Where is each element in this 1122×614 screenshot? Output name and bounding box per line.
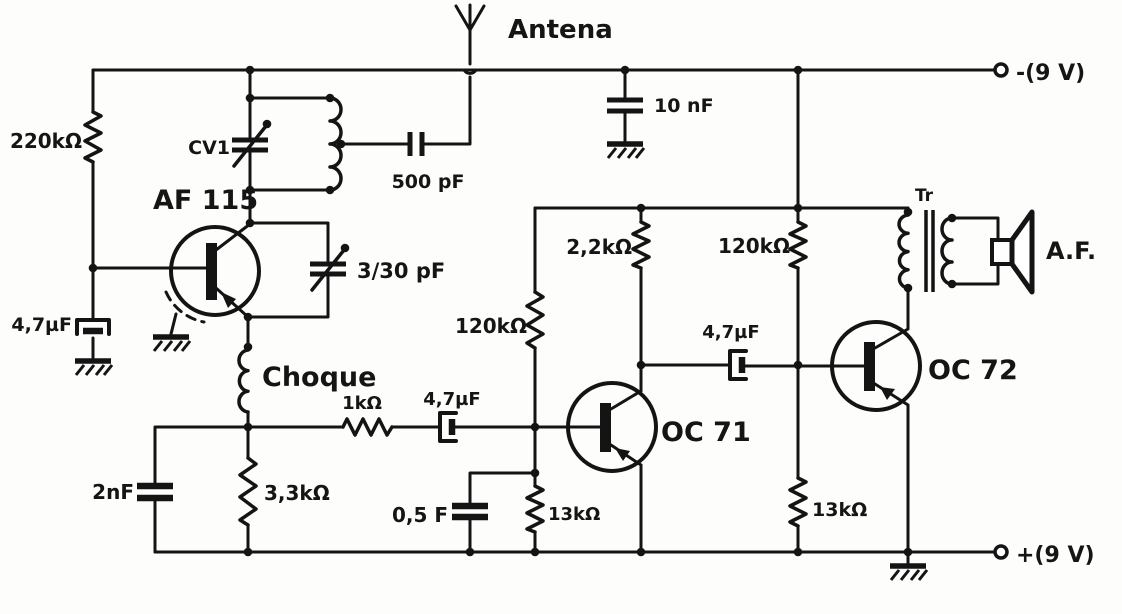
tank-link-wires xyxy=(250,98,330,190)
label-cv1: CV1 xyxy=(188,137,230,159)
capacitor-2nf: 2nF xyxy=(92,427,248,552)
label-2nf: 2nF xyxy=(92,480,134,504)
resistor-220k xyxy=(85,112,101,162)
capacitor-10nf: 10 nF xyxy=(607,70,714,158)
af115-shield-arc xyxy=(166,292,204,322)
oc71-base-bar xyxy=(600,403,611,452)
oc72-emitter-arrow xyxy=(880,387,895,400)
label-speaker: A.F. xyxy=(1046,237,1096,265)
antenna-wire xyxy=(424,30,476,144)
negative-terminal xyxy=(995,64,1007,76)
ground-icon xyxy=(153,337,190,351)
speaker-cone-icon xyxy=(1012,212,1032,292)
oc71-emitter-wire xyxy=(611,445,641,552)
label-220k: 220kΩ xyxy=(10,129,82,153)
speaker-driver xyxy=(992,240,1012,264)
label-13k-left: 13kΩ xyxy=(548,504,600,525)
antenna-icon xyxy=(456,5,484,30)
bias-network-oc72: 120kΩ 13kΩ xyxy=(718,70,867,552)
capacitor-500pf: 500 pF xyxy=(341,132,464,193)
label-antenna: Antena xyxy=(508,15,613,45)
label-trimmer: 3/30 pF xyxy=(357,259,445,283)
resistor-120k-right xyxy=(790,222,806,268)
label-af115: AF 115 xyxy=(153,185,258,216)
label-4u7-in: 4,7µF xyxy=(423,389,480,410)
radio-circuit-schematic: -(9 V) +(9 V) Antena 500 pF CV1 220kΩ xyxy=(0,0,1122,614)
transistor-oc72: OC 72 xyxy=(832,288,1018,580)
capacitor-0u5: 0,5 F xyxy=(392,473,535,552)
transformer-primary-coil xyxy=(899,215,908,288)
label-2k2: 2,2kΩ xyxy=(566,235,632,259)
resistor-120k-left xyxy=(527,292,543,348)
af115-base-bar xyxy=(206,243,217,300)
shield-ground-wire xyxy=(171,314,176,334)
speaker: A.F. xyxy=(952,212,1096,292)
label-oc71: OC 71 xyxy=(661,417,751,448)
capacitor-4u7-out: 4,7µF xyxy=(702,322,759,379)
label-choke: Choque xyxy=(262,362,376,393)
label-500pf: 500 pF xyxy=(392,171,465,193)
transformer-secondary-coil xyxy=(942,218,952,284)
resistor-3k3: 3,3kΩ xyxy=(240,427,330,552)
label-0u5: 0,5 F xyxy=(392,503,448,527)
label-10nf: 10 nF xyxy=(654,95,714,117)
label-120k-right: 120kΩ xyxy=(718,234,790,258)
variable-capacitor-cv1: CV1 xyxy=(188,120,271,166)
label-4u7-out: 4,7µF xyxy=(702,322,759,343)
label-4u7-base: 4,7µF xyxy=(11,314,72,336)
coupling-to-oc71: 1kΩ 4,7µF xyxy=(248,389,601,441)
base-network-af115: 220kΩ 4,7µF xyxy=(10,70,207,375)
capacitor-4u7-in: 4,7µF xyxy=(423,389,480,441)
label-3k3: 3,3kΩ xyxy=(264,481,330,505)
label-13k-right: 13kΩ xyxy=(812,499,867,521)
output-transformer: Tr xyxy=(899,186,952,292)
schematic-page: -(9 V) +(9 V) Antena 500 pF CV1 220kΩ xyxy=(0,0,1122,614)
label-transformer: Tr xyxy=(915,186,934,206)
oc72-base-bar xyxy=(864,342,875,391)
label-120k-left: 120kΩ xyxy=(455,314,527,338)
label-oc72: OC 72 xyxy=(928,355,1018,386)
choke-coil xyxy=(239,350,248,412)
antenna: Antena xyxy=(424,5,613,144)
ground-icon xyxy=(607,144,644,158)
resistor-13k-left xyxy=(527,486,543,532)
resistor-13k-right xyxy=(790,478,806,526)
ground-icon xyxy=(890,566,927,580)
trimmer-3-30pf: 3/30 pF xyxy=(248,223,445,317)
resistor-2k2: 2,2kΩ xyxy=(566,208,649,365)
label-1k: 1kΩ xyxy=(342,393,382,414)
ground-icon xyxy=(75,361,112,375)
positive-terminal xyxy=(995,546,1007,558)
resistor-1k xyxy=(343,419,392,435)
oc72-collector-wire xyxy=(875,288,908,348)
label-positive-supply: +(9 V) xyxy=(1016,543,1095,568)
label-negative-supply: -(9 V) xyxy=(1016,61,1085,86)
